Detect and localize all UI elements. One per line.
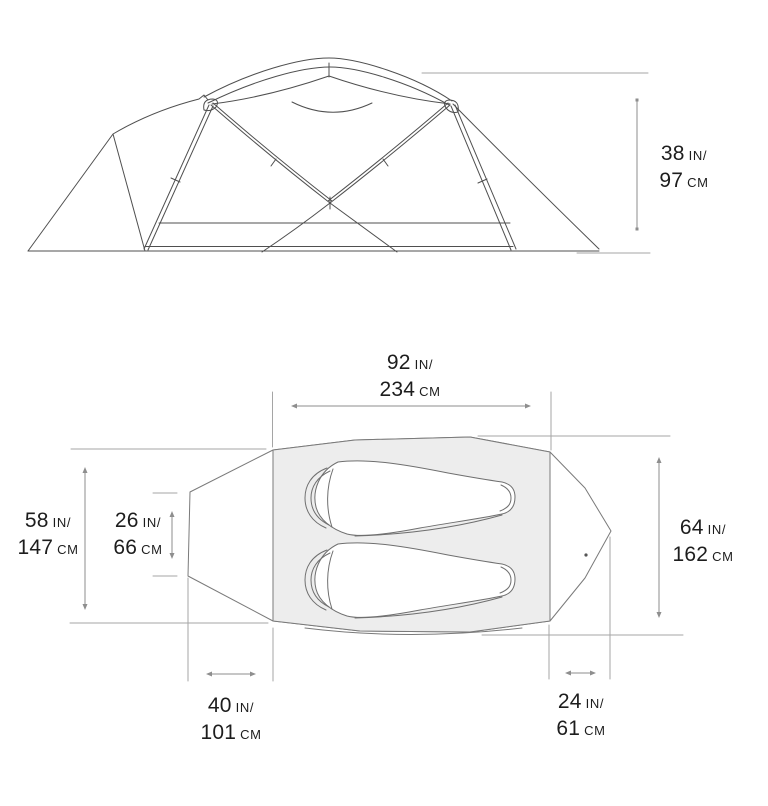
tent-pole-lines — [144, 76, 516, 252]
width-head-inches-unit: IN/ — [53, 515, 71, 530]
height-inches-value: 38 — [661, 142, 685, 165]
dimension-label-left-vestibule-width: 26IN/ 66CM — [113, 508, 162, 562]
right-vestibule-depth-cm-unit: CM — [584, 723, 605, 738]
dimension-cm-row: 234CM — [379, 377, 440, 404]
tent-dimensions-diagram: 38IN/ 97CM 92IN/ 234CM 58IN/ 147CM 26IN/… — [0, 0, 768, 806]
right-vestibule-depth-cm-value: 61 — [556, 717, 580, 740]
dimension-cm-row: 97CM — [659, 168, 708, 195]
left-vestibule-depth-cm-value: 101 — [200, 721, 236, 744]
left-vestibule-depth-inches-unit: IN/ — [236, 700, 254, 715]
width-foot-inches-value: 64 — [680, 516, 704, 539]
height-cm-value: 97 — [659, 169, 683, 192]
width-head-inches-value: 58 — [25, 509, 49, 532]
pole-hub-loops — [204, 99, 459, 113]
width-foot-cm-unit: CM — [712, 549, 733, 564]
dimension-inches-row: 92IN/ — [379, 350, 440, 377]
dimension-label-width-foot-end: 64IN/ 162CM — [672, 515, 733, 569]
dimension-cm-row: 61CM — [556, 716, 605, 743]
vestibule-width-cm-unit: CM — [141, 542, 162, 557]
vestibule-width-inches-value: 26 — [115, 509, 139, 532]
side-elevation-drawing — [28, 58, 599, 252]
stake-dot — [584, 553, 587, 556]
vestibule-width-inches-unit: IN/ — [143, 515, 161, 530]
floor-length-inches-unit: IN/ — [415, 357, 433, 372]
dimension-cm-row: 162CM — [672, 542, 733, 569]
floor-plan-drawing — [188, 437, 611, 635]
floor-length-cm-value: 234 — [379, 378, 415, 401]
width-foot-cm-value: 162 — [672, 543, 708, 566]
dimension-label-floor-length: 92IN/ 234CM — [379, 350, 440, 404]
left-vestibule-depth-cm-unit: CM — [240, 727, 261, 742]
width-head-cm-unit: CM — [57, 542, 78, 557]
dimension-inches-row: 38IN/ — [659, 141, 708, 168]
height-inches-unit: IN/ — [689, 148, 707, 163]
right-vestibule-depth-inches-value: 24 — [558, 690, 582, 713]
dimension-cm-row: 101CM — [200, 720, 261, 747]
height-cm-unit: CM — [687, 175, 708, 190]
right-vestibule-depth-inches-unit: IN/ — [586, 696, 604, 711]
floor-length-inches-value: 92 — [387, 351, 411, 374]
pole-tick-marks — [171, 63, 487, 209]
floor-length-cm-unit: CM — [419, 384, 440, 399]
dimension-label-left-vestibule-depth: 40IN/ 101CM — [200, 693, 261, 747]
vestibule-width-cm-value: 66 — [113, 536, 137, 559]
dimension-inches-row: 40IN/ — [200, 693, 261, 720]
tent-outline — [28, 58, 599, 251]
dimension-label-width-head-end: 58IN/ 147CM — [17, 508, 78, 562]
dimension-label-right-vestibule-depth: 24IN/ 61CM — [556, 689, 605, 743]
width-foot-inches-unit: IN/ — [708, 522, 726, 537]
dimension-inches-row: 64IN/ — [672, 515, 733, 542]
dimension-cm-row: 147CM — [17, 535, 78, 562]
dimension-label-height: 38IN/ 97CM — [659, 141, 708, 195]
width-head-cm-value: 147 — [17, 536, 53, 559]
dimension-cm-row: 66CM — [113, 535, 162, 562]
tent-ground-line — [28, 223, 599, 251]
left-vestibule-depth-inches-value: 40 — [208, 694, 232, 717]
dimension-inches-row: 26IN/ — [113, 508, 162, 535]
dimension-inches-row: 58IN/ — [17, 508, 78, 535]
dimension-inches-row: 24IN/ — [556, 689, 605, 716]
